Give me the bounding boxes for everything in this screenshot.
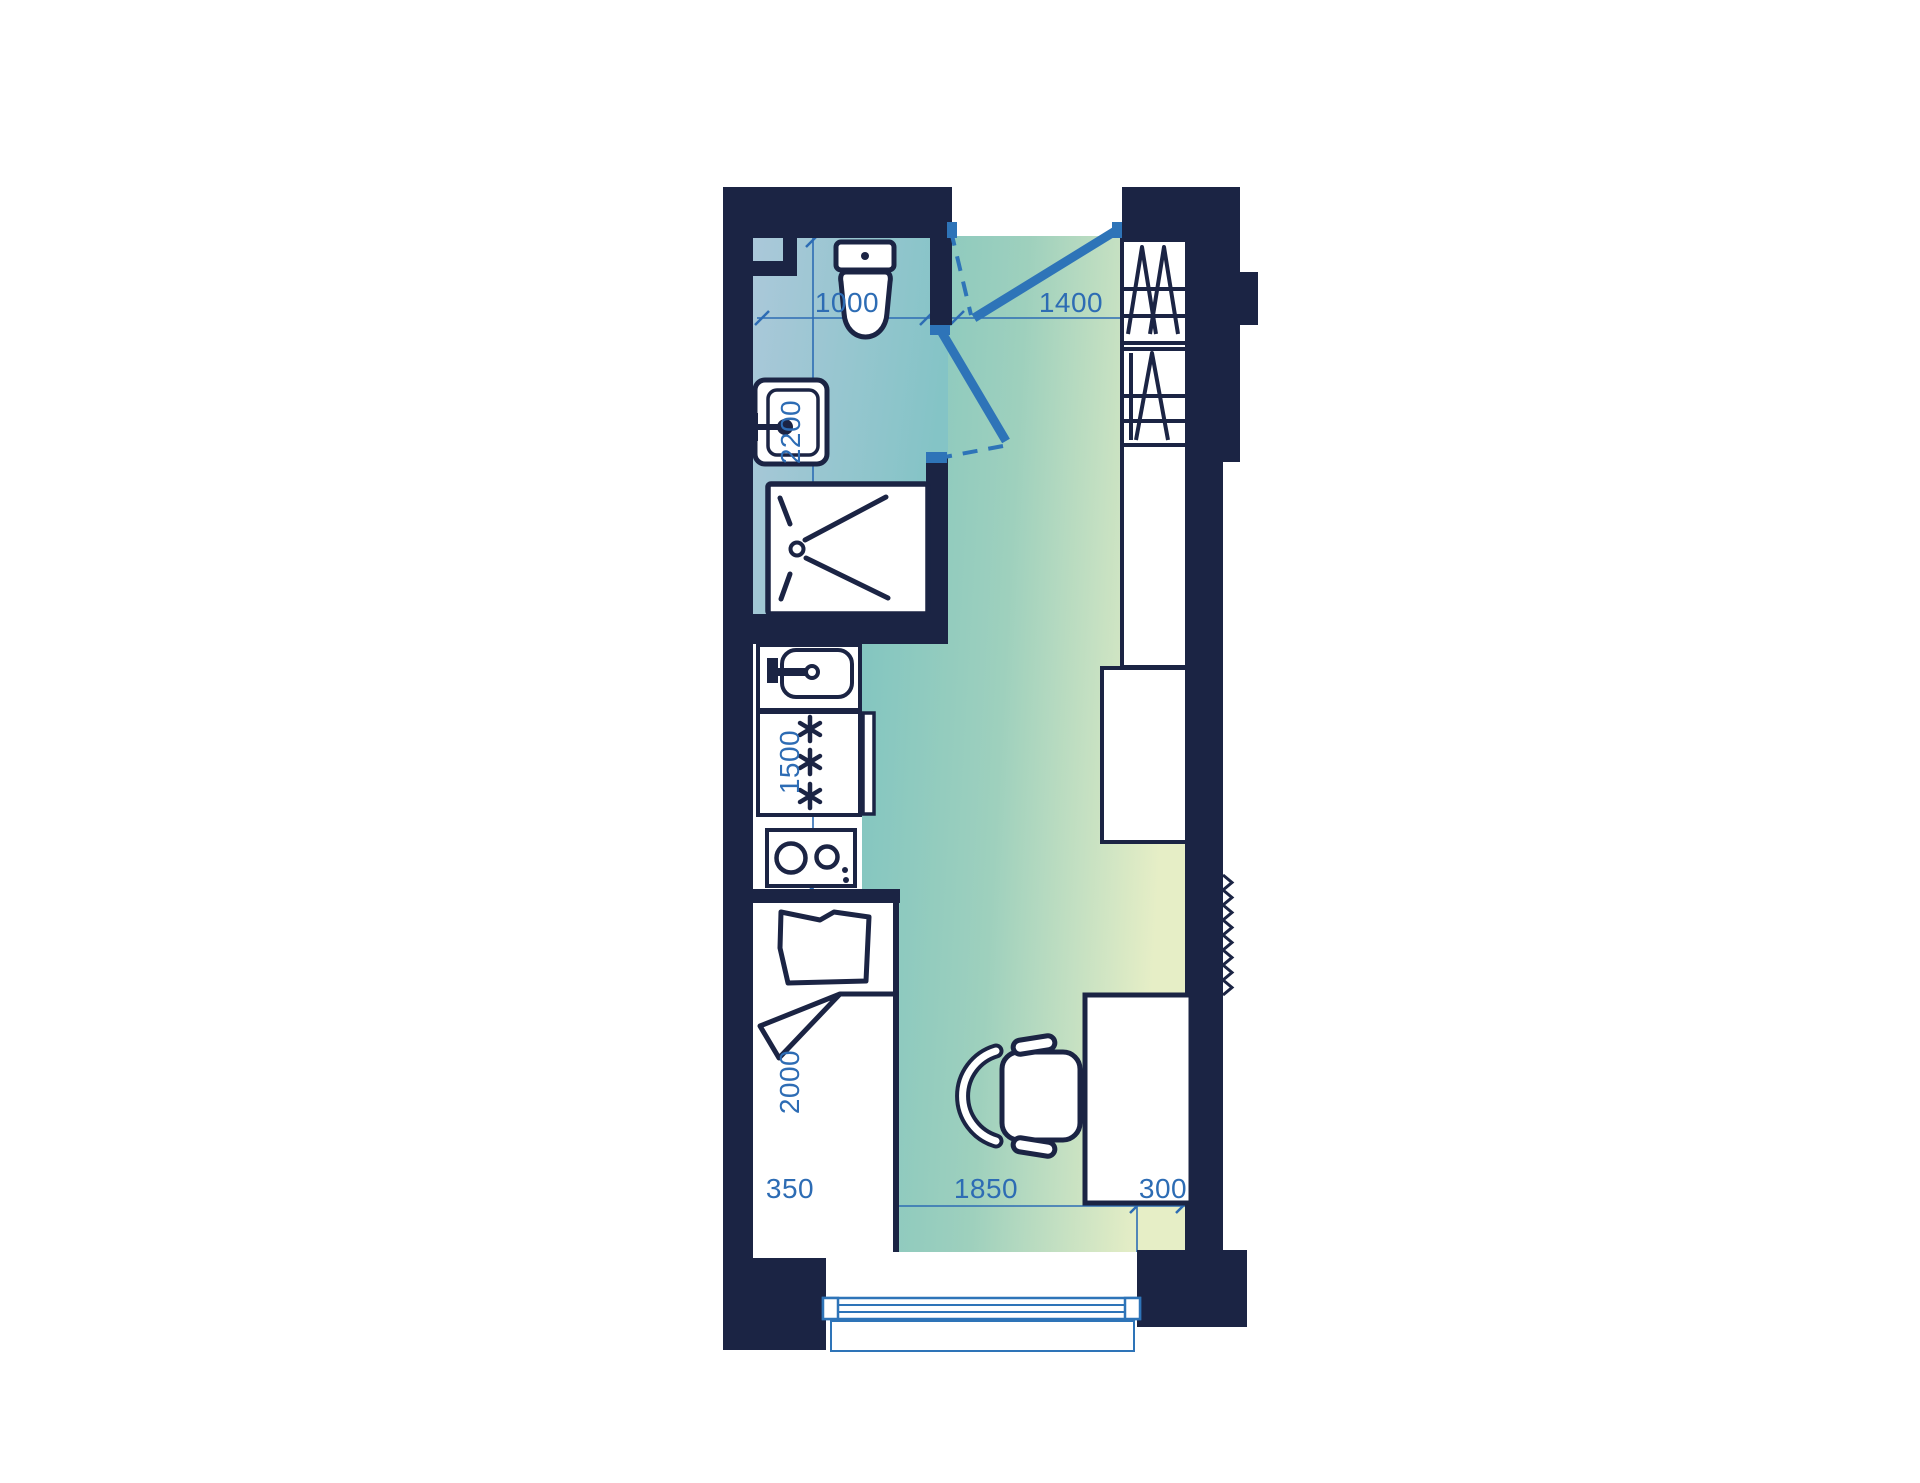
dim-bottom-center: 1850 xyxy=(954,1173,1018,1204)
sink-faucet-bar xyxy=(749,413,758,441)
dim-bath-width: 1000 xyxy=(815,287,879,318)
window-frame-end-right xyxy=(1125,1298,1140,1319)
dim-bottom-right: 300 xyxy=(1139,1173,1187,1204)
wall-shower-bottom xyxy=(723,614,945,644)
wall-break-zigzag-outer xyxy=(1223,875,1232,995)
chair-armrest-bottom xyxy=(1012,1137,1056,1157)
dim-bed-length: 2000 xyxy=(774,1050,805,1114)
stove-icon xyxy=(767,830,855,886)
desk xyxy=(1085,995,1191,1203)
kitchen-faucet-bar xyxy=(767,658,778,683)
shower-drain xyxy=(791,543,804,556)
desk-top xyxy=(1085,995,1191,1203)
dim-kitchen-depth: 1500 xyxy=(774,730,805,794)
fridge-door-panel xyxy=(863,713,874,814)
window-frame xyxy=(823,1298,1140,1319)
window-sill-outer xyxy=(831,1321,1134,1351)
window xyxy=(823,1252,1140,1352)
kitchen-faucet-stem xyxy=(778,668,808,676)
floor-plan-drawing: 1000 1400 2200 1500 2000 350 1850 300 xyxy=(0,0,1920,1483)
wall-bathroom-jamb-upper xyxy=(930,187,952,325)
pillow xyxy=(780,912,869,983)
stove-knob xyxy=(843,877,849,883)
shaft-wall-horizontal xyxy=(752,261,797,276)
burner-large xyxy=(777,844,806,873)
wall-kitchen-partition xyxy=(723,889,900,903)
dim-bottom-left: 350 xyxy=(766,1173,814,1204)
wall-top-bathroom xyxy=(723,187,952,238)
toilet-button xyxy=(861,252,869,260)
floor-plan-canvas: 1000 1400 2200 1500 2000 350 1850 300 xyxy=(0,0,1920,1483)
dim-entry-width: 1400 xyxy=(1039,287,1103,318)
kitchen-drain xyxy=(806,666,818,678)
window-frame-end-left xyxy=(823,1298,838,1319)
chair-armrest-top xyxy=(1012,1035,1056,1055)
chair-seat xyxy=(1002,1052,1080,1140)
wall-right-upper xyxy=(1185,187,1240,462)
cabinet-body xyxy=(1102,668,1187,842)
wall-right-pilaster xyxy=(1240,272,1258,325)
wall-bottom-right-pier xyxy=(1137,1250,1247,1327)
wall-bottom-left-pier xyxy=(723,1250,826,1350)
burner-small xyxy=(817,847,838,868)
kitchen-sink-icon xyxy=(758,645,860,710)
wall-left xyxy=(723,187,753,1350)
stove-knob xyxy=(842,867,848,873)
dim-bath-depth: 2200 xyxy=(775,400,806,464)
pier-edge-dashes xyxy=(819,1260,824,1301)
shower-icon xyxy=(768,484,928,614)
bed-right-edge xyxy=(893,903,899,1258)
